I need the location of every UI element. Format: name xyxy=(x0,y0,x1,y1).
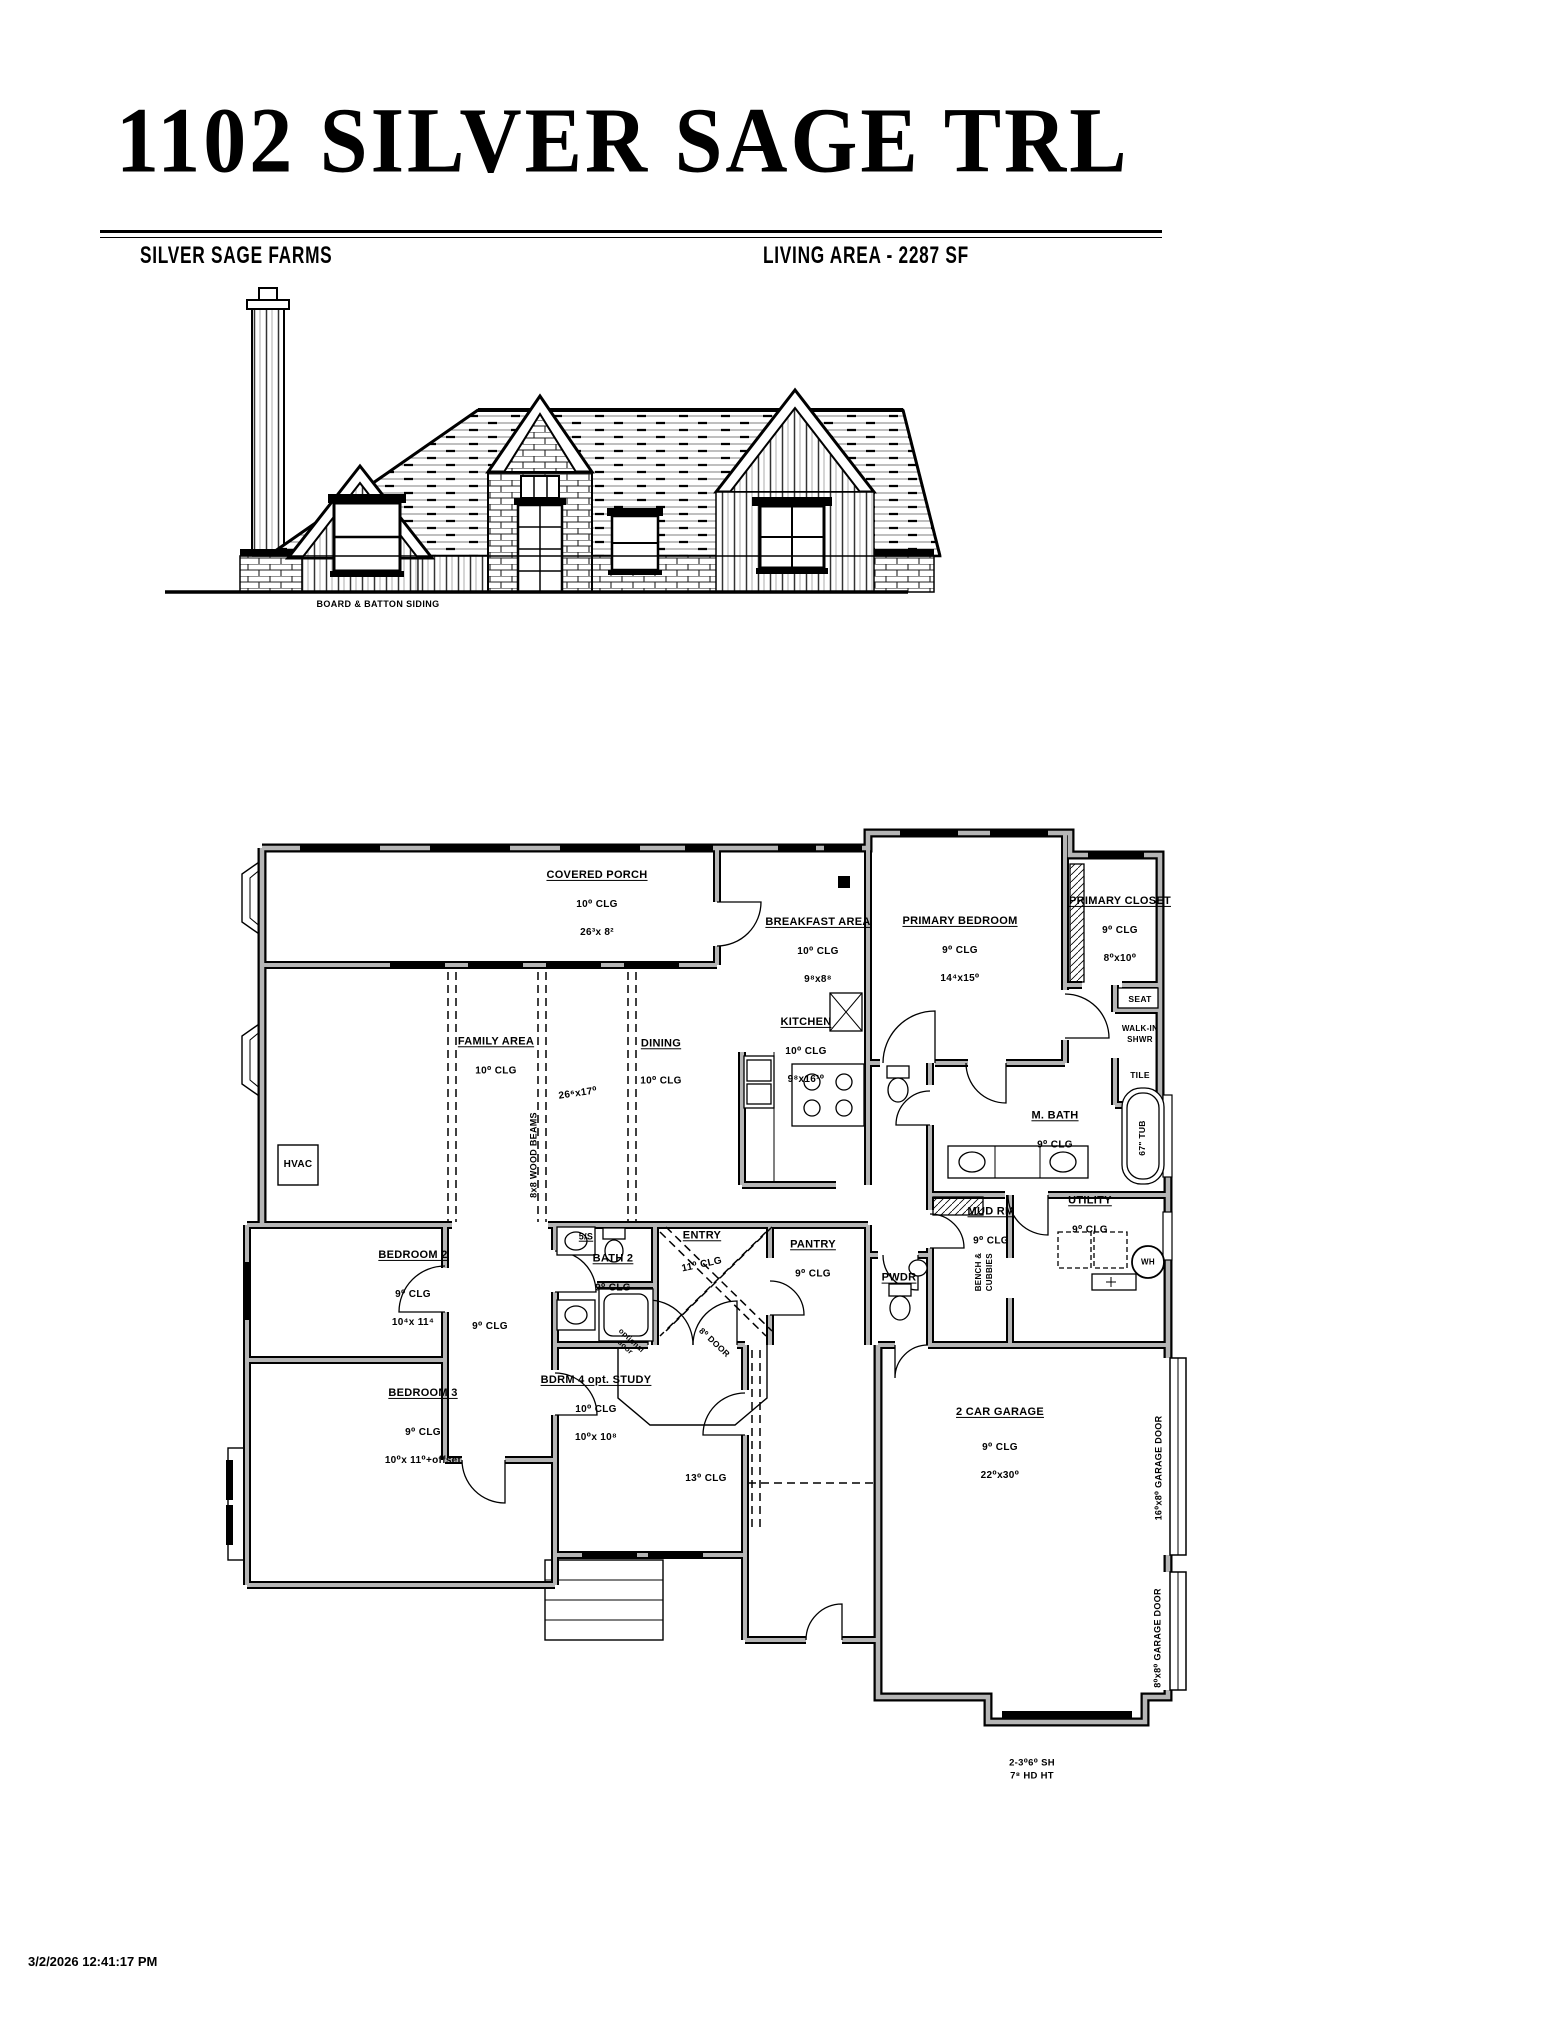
room-name: BEDROOM 2 xyxy=(378,1248,447,1263)
room-label-mud-rm: MUD RM 9⁰ CLG xyxy=(967,1189,1014,1262)
living-area-label: LIVING AREA - 2287 SF xyxy=(763,242,969,270)
room-name: FAMILY AREA xyxy=(458,1034,534,1049)
garage-doors xyxy=(1170,1358,1186,1690)
room-label-dining: DINING 10⁰ CLG xyxy=(640,1021,682,1102)
room-ceiling: 9⁰ CLG xyxy=(967,1234,1014,1248)
room-dim: 8⁰x10⁰ xyxy=(1069,952,1171,966)
garage-door-8-label: 8⁰x8⁰ GARAGE DOOR xyxy=(1152,1588,1165,1688)
room-label-bedroom2: BEDROOM 2 9⁰ CLG 10⁴x 11⁴ xyxy=(378,1233,447,1345)
page-title: 1102 SILVER SAGE TRL xyxy=(116,86,1130,194)
room-ceiling: 10⁰ CLG xyxy=(458,1064,534,1078)
room-dim: 9⁸x8⁸ xyxy=(765,973,870,987)
door-swings xyxy=(399,902,1109,1640)
room-dim: 10⁰x 10⁸ xyxy=(541,1431,652,1445)
walk-in-shower-label: WALK-IN SHWR xyxy=(1122,1023,1158,1045)
floor-plan-sheet: 1102 SILVER SAGE TRL SILVER SAGE FARMS L… xyxy=(0,0,1559,2017)
room-ceiling: 9⁰ CLG xyxy=(378,1288,447,1302)
print-timestamp: 3/2/2026 12:41:17 PM xyxy=(28,1954,157,1969)
siding-label: BOARD & BATTON SIDING xyxy=(316,599,439,609)
room-ceiling: 9⁰ CLG xyxy=(902,944,1017,958)
room-label-primary-closet: PRIMARY CLOSET 9⁰ CLG 8⁰x10⁰ xyxy=(1069,879,1171,981)
room-label-m-bath: M. BATH 9⁰ CLG xyxy=(1031,1093,1078,1166)
room-label-bedroom3: BEDROOM 3 9⁰ CLG 10⁰x 11⁰+offset xyxy=(385,1371,461,1483)
room-ceiling: 10⁰ CLG xyxy=(781,1045,832,1059)
room-ceiling: 9⁰ CLG xyxy=(790,1267,836,1281)
room-name: PANTRY xyxy=(790,1237,836,1252)
hvac-label: HVAC xyxy=(284,1158,313,1172)
room-name: UTILITY xyxy=(1068,1193,1112,1208)
room-ceiling: 9⁰ CLG xyxy=(1069,924,1171,938)
room-name: BEDROOM 3 xyxy=(385,1386,461,1401)
room-label-bdrm4: BDRM 4 opt. STUDY 10⁰ CLG 10⁰x 10⁸ xyxy=(541,1358,652,1460)
room-name: 2 CAR GARAGE xyxy=(956,1405,1044,1420)
room-label-pantry: PANTRY 9⁰ CLG xyxy=(790,1222,836,1295)
room-label-primary-bedroom: PRIMARY BEDROOM 9⁰ CLG 14⁴x15⁰ xyxy=(902,899,1017,1001)
room-dim: 22⁰x30⁰ xyxy=(956,1469,1044,1483)
room-name: KITCHEN xyxy=(781,1015,832,1030)
hall13-ceiling-label: 13⁰ CLG xyxy=(685,1472,727,1486)
room-dim: 9⁸x16¹⁰ xyxy=(781,1073,832,1087)
room-label-breakfast: BREAKFAST AREA 10⁰ CLG 9⁸x8⁸ xyxy=(765,900,870,1002)
title-rule-thick xyxy=(100,230,1162,233)
room-dim: 14⁴x15⁰ xyxy=(902,972,1017,986)
room-dim: 10⁴x 11⁴ xyxy=(378,1316,447,1330)
room-label-garage: 2 CAR GARAGE 9⁰ CLG 22⁰x30⁰ xyxy=(956,1390,1044,1498)
wood-beams-label: 8x8 WOOD BEAMS xyxy=(528,1112,541,1198)
room-name: PRIMARY CLOSET xyxy=(1069,894,1171,909)
room-ceiling: 9⁰ CLG xyxy=(385,1426,461,1440)
garage-window-note: 2-3⁰6⁰ SH 7⁸ HD HT xyxy=(1009,1757,1055,1784)
room-name: MUD RM xyxy=(967,1204,1014,1219)
room-name: BDRM 4 opt. STUDY xyxy=(541,1373,652,1388)
tile-label: TILE xyxy=(1130,1070,1150,1082)
room-ceiling: 9⁰ CLG xyxy=(956,1441,1044,1455)
water-heater-label: WH xyxy=(1141,1256,1155,1267)
room-ceiling: 11⁰ CLG xyxy=(681,1254,724,1276)
plan-drawing xyxy=(0,0,1559,2017)
room-name: ENTRY xyxy=(682,1228,723,1243)
elevation-drawing xyxy=(165,288,940,592)
room-ceiling: 10⁰ CLG xyxy=(546,898,647,912)
room-ceiling: 10⁰ CLG xyxy=(765,945,870,959)
room-label-bath2: BATH 2 9⁰ CLG xyxy=(593,1236,634,1309)
room-ceiling: 9⁰ CLG xyxy=(1068,1223,1112,1237)
hall-ceiling-label: 9⁰ CLG xyxy=(472,1320,508,1334)
room-label-covered-porch: COVERED PORCH 10⁰ CLG 26³x 8² xyxy=(546,853,647,955)
room-name: PRIMARY BEDROOM xyxy=(902,914,1017,929)
room-name: DINING xyxy=(640,1036,682,1051)
seat-label: SEAT xyxy=(1128,994,1151,1006)
garage-door-16-label: 16⁰x8⁰ GARAGE DOOR xyxy=(1153,1416,1166,1521)
room-ceiling: 9⁰ CLG xyxy=(593,1281,634,1295)
room-ceiling: 10⁰ CLG xyxy=(541,1403,652,1417)
room-label-family-area: FAMILY AREA 10⁰ CLG xyxy=(458,1019,534,1092)
room-name: PWDR xyxy=(882,1270,917,1285)
room-ceiling: 9⁰ CLG xyxy=(1031,1138,1078,1152)
tub-label: 67" TUB xyxy=(1137,1120,1149,1155)
room-label-utility: UTILITY 9⁰ CLG xyxy=(1068,1178,1112,1251)
subdivision-label: SILVER SAGE FARMS xyxy=(140,242,332,270)
room-ceiling: 10⁰ CLG xyxy=(640,1074,682,1088)
room-name: BREAKFAST AREA xyxy=(765,915,870,930)
shelves-label: 5/S xyxy=(579,1231,593,1244)
room-label-kitchen: KITCHEN 10⁰ CLG 9⁸x16¹⁰ xyxy=(781,1000,832,1102)
room-label-pwdr: PWDR xyxy=(882,1256,917,1301)
room-name: COVERED PORCH xyxy=(546,868,647,883)
title-rule-thin xyxy=(100,237,1162,238)
room-name: M. BATH xyxy=(1031,1108,1078,1123)
bench-cubbies-label: BENCH & CUBBIES xyxy=(973,1253,995,1292)
room-label-entry: ENTRY 11⁰ CLG xyxy=(682,1213,723,1286)
room-dim: 26³x 8² xyxy=(546,926,647,940)
room-name: BATH 2 xyxy=(593,1251,634,1266)
room-dim: 10⁰x 11⁰+offset xyxy=(385,1454,461,1468)
